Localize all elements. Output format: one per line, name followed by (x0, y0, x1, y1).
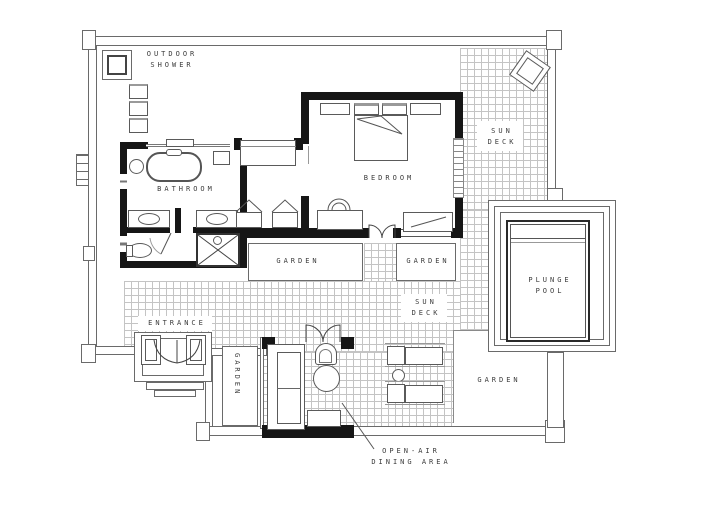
lounger-2-headrest (387, 384, 405, 403)
floor-plan: OUTDOOR SHOWER BATHROOM BEDROOM SUN DECK… (0, 0, 728, 522)
bench-left-basin-arc-outer (328, 199, 350, 210)
entrance-door-panel-right-inner (190, 339, 202, 361)
fence-post-lower-left (196, 422, 210, 441)
garden-strip-label: GARDEN (233, 353, 241, 396)
toilet-door-leaf (161, 233, 171, 254)
bath-side-table (213, 151, 230, 165)
pool-step-line1 (511, 238, 585, 239)
bedroom-bench-right (403, 212, 453, 232)
wall-south-2a (393, 228, 401, 238)
fence-post-top-left (82, 30, 96, 50)
plunge-pool-label-line2: POOL (528, 286, 571, 297)
fence-left (88, 46, 97, 354)
pavilion-post-right (341, 337, 354, 349)
garden-bottom-right-topline (453, 330, 489, 331)
sun-deck-mid-label-line1: SUN (412, 297, 441, 308)
luggage-rack-1 (236, 212, 262, 228)
console-shelf-line (240, 146, 296, 147)
bed-pillow-1 (354, 103, 379, 115)
open-air-dining-label: OPEN-AIR DINING AREA (371, 446, 450, 468)
pool-step-line2 (511, 242, 585, 243)
sun-deck-right-label: SUN DECK (488, 126, 517, 148)
entrance-step-1 (146, 382, 204, 390)
bathtub-faucet (166, 149, 182, 156)
luggage-rack-2-hanger (272, 200, 298, 212)
sun-deck-mid-label-line2: DECK (412, 308, 441, 319)
bed (354, 115, 408, 161)
wall-bedroom-left-upper (301, 92, 309, 144)
dining-table (313, 365, 340, 392)
sun-deck-tiles-right-lower (460, 210, 488, 332)
luggage-rack-2 (272, 212, 298, 228)
sun-deck-mid-label: SUN DECK (412, 297, 441, 319)
lounger-frame-line-3 (385, 381, 445, 382)
bathroom-label: BATHROOM (157, 185, 215, 193)
toilet-tank (126, 245, 133, 257)
lounger-2-body (405, 385, 443, 403)
entrance-step-2 (154, 390, 196, 397)
sink-left (138, 213, 160, 225)
bedroom-french-door-left (369, 225, 382, 238)
fence-post-top-right (546, 30, 562, 50)
storage-cube-3 (129, 118, 148, 133)
pavilion-left-wall-line (260, 337, 264, 429)
pool-walkway (547, 352, 564, 428)
open-air-dining-label-line2: DINING AREA (371, 457, 450, 468)
bedroom-louver-window (453, 138, 464, 198)
storage-cube-2 (129, 101, 148, 116)
wall-bedroom-top (301, 92, 463, 100)
outdoor-shower-label-line2: SHOWER (147, 60, 198, 71)
dining-chair-inner (319, 349, 332, 363)
dining-chair (315, 343, 337, 365)
sun-deck-right-label-line2: DECK (488, 137, 517, 148)
fence-post-left-mid (83, 246, 95, 261)
bed-pillow-2 (382, 103, 407, 115)
bedroom-label: BEDROOM (364, 174, 415, 182)
garden-bottom-right-label: GARDEN (477, 376, 520, 384)
fence-bottom (199, 426, 561, 436)
plunge-pool-label-line1: PLUNGE (528, 275, 571, 286)
lounger-1-body (405, 347, 443, 365)
outdoor-shower-label-line1: OUTDOOR (147, 49, 198, 60)
bath-shelf-tray (166, 139, 194, 147)
nightstand-left (320, 103, 350, 115)
shower-drain (213, 236, 222, 245)
sink-right (206, 213, 228, 225)
outdoor-shower-label: OUTDOOR SHOWER (147, 49, 198, 71)
garden-left-label: GARDEN (276, 257, 319, 265)
console-table (240, 140, 296, 166)
lounger-frame-line-4 (385, 404, 445, 405)
wall-bedroom-right-upper (455, 92, 463, 138)
sofa-cushion-divider (277, 388, 301, 389)
door-path-tiles (364, 243, 396, 281)
lounger-1-headrest (387, 346, 405, 365)
bathtub (146, 152, 202, 182)
plunge-pool-label: PLUNGE POOL (528, 275, 571, 297)
sun-deck-table-inner (516, 57, 544, 85)
dining-ottoman (307, 410, 341, 427)
bedroom-bench-left (317, 210, 363, 230)
sun-deck-right-label-line1: SUN (488, 126, 517, 137)
bathroom-window-1 (120, 174, 127, 189)
bath-stool (129, 159, 144, 174)
fence-post-bottom-left (81, 344, 96, 363)
lounger-frame-line-2 (385, 366, 445, 367)
lounger-frame-line-1 (385, 343, 445, 344)
entrance-door-panel-right (186, 335, 206, 365)
entrance-label: ENTRANCE (148, 319, 206, 327)
outside-gate-steps (76, 154, 89, 186)
entrance-door-panel-left-inner (145, 339, 157, 361)
wall-bathroom-top-cap (120, 142, 148, 149)
bench-left-basin-arc-inner (332, 203, 346, 210)
open-air-dining-label-line1: OPEN-AIR (371, 446, 450, 457)
garden-right-label: GARDEN (406, 257, 449, 265)
fence-top (88, 36, 556, 46)
storage-cube-1 (129, 84, 148, 99)
wall-vanity-divider (175, 208, 181, 233)
nightstand-right (410, 103, 441, 115)
closet-door-line (308, 146, 309, 164)
entrance-door-panel-left (141, 335, 161, 365)
outdoor-shower-base (107, 55, 127, 75)
